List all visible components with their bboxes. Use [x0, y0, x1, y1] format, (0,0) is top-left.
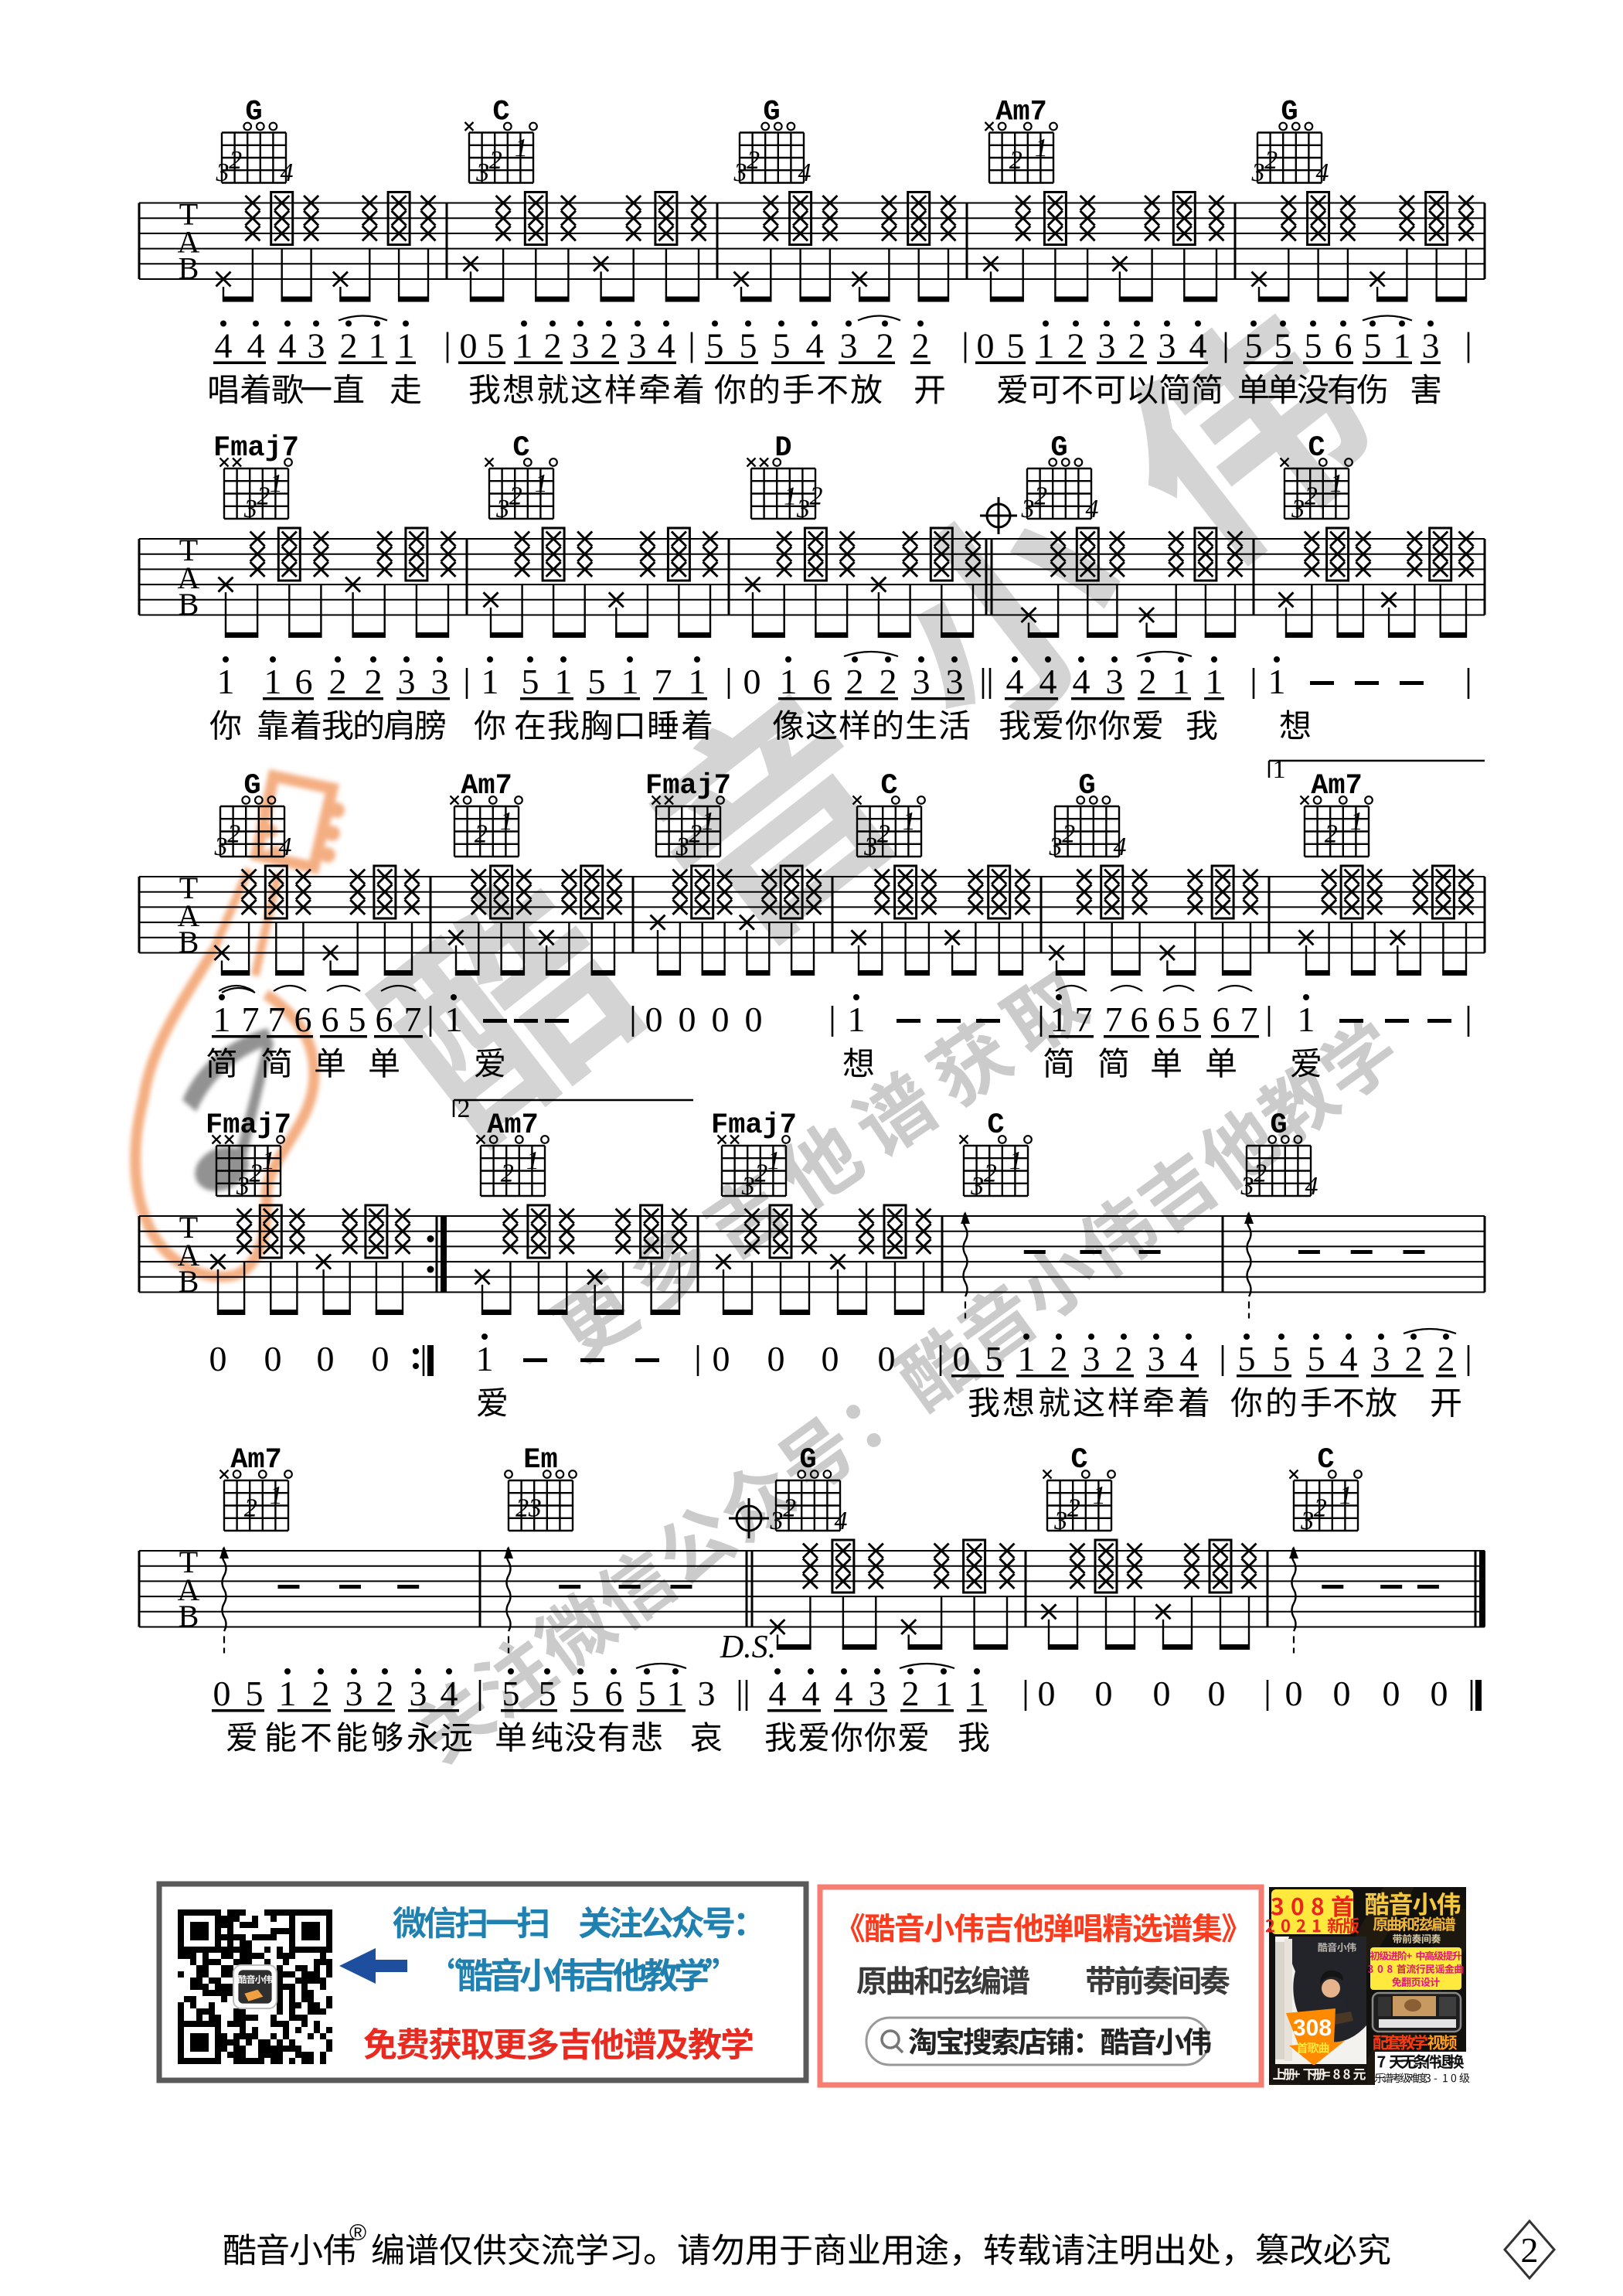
- svg-text:7: 7: [404, 1000, 422, 1039]
- svg-text:3: 3: [1098, 326, 1116, 366]
- svg-text:1: 1: [270, 1481, 283, 1510]
- svg-text:3: 3: [243, 495, 257, 523]
- svg-text:1: 1: [1298, 1000, 1315, 1039]
- svg-text:5: 5: [502, 1674, 520, 1713]
- svg-text:2: 2: [257, 482, 270, 511]
- svg-text:2: 2: [876, 326, 894, 366]
- svg-text:4: 4: [658, 326, 675, 366]
- svg-text:B: B: [179, 1264, 199, 1299]
- svg-text:2: 2: [601, 326, 618, 366]
- svg-text:3: 3: [1049, 833, 1063, 861]
- svg-text:2: 2: [810, 482, 823, 511]
- svg-text:0: 0: [264, 1339, 282, 1378]
- svg-text:3: 3: [675, 833, 689, 861]
- svg-text:1: 1: [369, 326, 386, 366]
- svg-text:2: 2: [509, 482, 522, 511]
- svg-text:4: 4: [1073, 662, 1091, 701]
- svg-text:1: 1: [515, 326, 533, 366]
- svg-text:3: 3: [398, 662, 416, 701]
- svg-text:0: 0: [460, 326, 478, 366]
- svg-text:1: 1: [1037, 326, 1055, 366]
- svg-text:0: 0: [317, 1339, 335, 1378]
- svg-text:C: C: [512, 432, 529, 465]
- svg-text:1: 1: [1393, 326, 1411, 366]
- svg-text:3: 3: [863, 833, 877, 861]
- svg-text:4: 4: [798, 158, 811, 187]
- svg-text:2: 2: [1009, 146, 1022, 175]
- svg-text:2: 2: [227, 820, 240, 849]
- svg-text:1: 1: [1009, 1146, 1022, 1175]
- svg-text:3: 3: [528, 1494, 542, 1523]
- svg-text:3: 3: [495, 495, 509, 523]
- svg-text:0: 0: [977, 326, 995, 366]
- svg-text:4: 4: [1039, 662, 1057, 701]
- svg-text:1: 1: [476, 1339, 494, 1378]
- svg-text:1: 1: [1339, 1481, 1352, 1510]
- svg-text:2: 2: [312, 1674, 330, 1713]
- svg-text:2: 2: [340, 326, 358, 366]
- svg-text:5: 5: [706, 326, 724, 366]
- svg-text:0: 0: [822, 1339, 839, 1378]
- svg-text:5: 5: [1308, 1339, 1325, 1378]
- svg-text:4: 4: [215, 326, 233, 366]
- svg-text:3: 3: [410, 1674, 427, 1713]
- svg-text:1: 1: [217, 662, 235, 701]
- svg-text:2: 2: [880, 662, 897, 701]
- svg-text:1: 1: [689, 662, 706, 701]
- svg-text:4: 4: [1316, 158, 1329, 187]
- svg-text:1: 1: [968, 1674, 986, 1713]
- svg-text:B: B: [179, 1599, 199, 1633]
- svg-text:2: 2: [984, 1160, 997, 1188]
- svg-text:2: 2: [376, 1674, 394, 1713]
- svg-text:2: 2: [1128, 326, 1146, 366]
- svg-text:C: C: [987, 1109, 1004, 1142]
- svg-text:3: 3: [216, 158, 230, 187]
- svg-text:4: 4: [279, 833, 292, 861]
- svg-text:Am7: Am7: [461, 770, 512, 802]
- svg-text:4: 4: [835, 1507, 848, 1535]
- svg-text:5: 5: [349, 1000, 366, 1039]
- svg-text:2: 2: [902, 1674, 920, 1713]
- svg-text:G: G: [1270, 1109, 1287, 1142]
- svg-text:C: C: [880, 770, 897, 802]
- svg-text:3: 3: [345, 1674, 363, 1713]
- svg-text:2: 2: [846, 662, 864, 701]
- svg-text:C: C: [492, 97, 509, 129]
- svg-text:1: 1: [1273, 755, 1286, 784]
- svg-text:1: 1: [481, 662, 499, 701]
- svg-text:3: 3: [236, 1172, 250, 1201]
- svg-text:5: 5: [773, 326, 791, 366]
- svg-text:5: 5: [246, 1674, 264, 1713]
- svg-text:4: 4: [1189, 326, 1207, 366]
- svg-text:5: 5: [1007, 326, 1025, 366]
- svg-text:0: 0: [1208, 1674, 1226, 1713]
- svg-text:5: 5: [1182, 1000, 1200, 1039]
- svg-text:1: 1: [784, 482, 797, 511]
- svg-text:0: 0: [645, 1000, 663, 1039]
- svg-text:5: 5: [487, 326, 505, 366]
- svg-text:7: 7: [655, 662, 672, 701]
- svg-text:1: 1: [1172, 662, 1190, 701]
- svg-text:2: 2: [1405, 1339, 1423, 1378]
- svg-text:6: 6: [1158, 1000, 1176, 1039]
- svg-text:2: 2: [365, 662, 383, 701]
- svg-text:4: 4: [769, 1674, 787, 1713]
- svg-text:4: 4: [1114, 833, 1127, 861]
- svg-text:1: 1: [702, 807, 715, 836]
- svg-text:5: 5: [1364, 326, 1382, 366]
- svg-text:5: 5: [1274, 326, 1292, 366]
- svg-text:2: 2: [1521, 2230, 1539, 2270]
- svg-text:3: 3: [698, 1674, 716, 1713]
- svg-text:0: 0: [1095, 1674, 1113, 1713]
- svg-text:7: 7: [1240, 1000, 1258, 1039]
- svg-text:2: 2: [544, 326, 562, 366]
- svg-text:5: 5: [985, 1339, 1003, 1378]
- svg-text:3: 3: [1159, 326, 1176, 366]
- svg-text:2: 2: [1034, 482, 1047, 511]
- svg-text:Fmaj7: Fmaj7: [645, 770, 731, 802]
- svg-text:3: 3: [1251, 158, 1265, 187]
- svg-text:0: 0: [878, 1339, 896, 1378]
- svg-text:2: 2: [754, 1160, 767, 1188]
- svg-text:1: 1: [279, 1674, 297, 1713]
- svg-text:5: 5: [740, 326, 757, 366]
- svg-text:4: 4: [1305, 1172, 1318, 1201]
- svg-text:0: 0: [1038, 1674, 1056, 1713]
- svg-text:1: 1: [213, 1000, 231, 1039]
- svg-text:5: 5: [539, 1674, 556, 1713]
- svg-text:7: 7: [1075, 1000, 1093, 1039]
- svg-text:3: 3: [629, 326, 647, 366]
- svg-text:0: 0: [953, 1339, 971, 1378]
- svg-text:6: 6: [605, 1674, 623, 1713]
- svg-text:B: B: [179, 925, 199, 959]
- svg-text:6: 6: [1335, 326, 1352, 366]
- svg-text:5: 5: [1238, 1339, 1256, 1378]
- svg-text:1: 1: [270, 469, 283, 498]
- svg-text:G: G: [1078, 770, 1095, 802]
- svg-text:3: 3: [1148, 1339, 1165, 1378]
- svg-text:1: 1: [1093, 1481, 1106, 1510]
- svg-text:3: 3: [733, 158, 747, 187]
- svg-text:1: 1: [621, 662, 639, 701]
- svg-text:3: 3: [869, 1674, 886, 1713]
- svg-text:D: D: [774, 432, 791, 465]
- svg-text:G: G: [1281, 97, 1298, 129]
- svg-text:0: 0: [1153, 1674, 1171, 1713]
- svg-text:5: 5: [1245, 326, 1263, 366]
- svg-text:0: 0: [209, 1339, 227, 1378]
- svg-text:G: G: [799, 1444, 816, 1477]
- svg-text:7: 7: [1105, 1000, 1123, 1039]
- svg-text:2: 2: [1115, 1339, 1133, 1378]
- svg-text:308: 308: [1293, 2015, 1332, 2041]
- svg-text:C: C: [1070, 1444, 1087, 1477]
- svg-text:6: 6: [295, 662, 313, 701]
- svg-text:2: 2: [475, 820, 488, 849]
- svg-text:4: 4: [1180, 1339, 1198, 1378]
- svg-text:1: 1: [848, 1000, 866, 1039]
- svg-text:3: 3: [741, 1172, 755, 1201]
- svg-text:6: 6: [376, 1000, 393, 1039]
- svg-text:1: 1: [515, 134, 528, 162]
- svg-text:5: 5: [522, 662, 539, 701]
- svg-text:0: 0: [745, 1000, 763, 1039]
- svg-text:4: 4: [281, 158, 294, 187]
- svg-text:4: 4: [441, 1674, 458, 1713]
- svg-text:1: 1: [397, 326, 415, 366]
- svg-text:Fmaj7: Fmaj7: [213, 432, 299, 465]
- svg-text:2: 2: [458, 1095, 471, 1123]
- svg-text:1: 1: [1018, 1339, 1036, 1378]
- svg-text:3: 3: [1291, 495, 1305, 523]
- svg-text:4: 4: [1086, 495, 1099, 523]
- svg-text:G: G: [243, 770, 260, 802]
- svg-text:1: 1: [526, 1146, 539, 1175]
- svg-text:5: 5: [1273, 1339, 1291, 1378]
- svg-text:G: G: [1050, 432, 1067, 465]
- svg-text:0: 0: [767, 1339, 785, 1378]
- svg-text:1: 1: [780, 662, 798, 701]
- svg-text:4: 4: [1006, 662, 1024, 701]
- svg-text:2: 2: [1314, 1494, 1327, 1523]
- svg-text:3: 3: [1240, 1172, 1254, 1201]
- svg-text:3: 3: [913, 662, 931, 701]
- svg-text:2: 2: [501, 1160, 514, 1188]
- svg-text:4: 4: [1340, 1339, 1358, 1378]
- svg-text:3: 3: [308, 326, 325, 366]
- svg-text:1: 1: [1350, 807, 1363, 836]
- svg-text:2: 2: [1050, 1339, 1068, 1378]
- svg-text:1: 1: [1330, 469, 1343, 498]
- svg-text:3: 3: [970, 1172, 984, 1201]
- svg-text:4: 4: [835, 1674, 853, 1713]
- svg-text:1: 1: [767, 1146, 781, 1175]
- svg-text:1: 1: [667, 1674, 685, 1713]
- svg-text:2: 2: [689, 820, 702, 849]
- svg-text:3: 3: [1083, 1339, 1101, 1378]
- svg-text:2: 2: [489, 146, 502, 175]
- svg-text:1: 1: [935, 1674, 953, 1713]
- svg-text:®: ®: [349, 2220, 366, 2246]
- svg-text:7: 7: [268, 1000, 286, 1039]
- svg-text:Fmaj7: Fmaj7: [711, 1109, 797, 1142]
- svg-text:Am7: Am7: [1311, 770, 1363, 802]
- svg-text:3: 3: [1106, 662, 1124, 701]
- svg-text:2: 2: [1062, 820, 1075, 849]
- svg-text:Am7: Am7: [995, 97, 1047, 129]
- svg-text:2: 2: [1254, 1160, 1267, 1188]
- svg-text:6: 6: [1213, 1000, 1230, 1039]
- svg-text:0: 0: [1431, 1674, 1448, 1713]
- svg-text:1: 1: [1050, 1000, 1068, 1039]
- svg-text:0: 0: [213, 1674, 231, 1713]
- svg-text:0: 0: [1383, 1674, 1400, 1713]
- svg-text:2: 2: [877, 820, 890, 849]
- svg-text:Am7: Am7: [487, 1109, 539, 1142]
- svg-text:3: 3: [1053, 1507, 1067, 1535]
- svg-text:1: 1: [1035, 134, 1048, 162]
- svg-text:C: C: [1317, 1444, 1334, 1477]
- svg-text:4: 4: [802, 1674, 820, 1713]
- svg-text:1: 1: [903, 807, 916, 836]
- svg-text:3: 3: [572, 326, 590, 366]
- svg-text:3: 3: [475, 158, 489, 187]
- svg-text:5: 5: [572, 1674, 590, 1713]
- svg-text:0: 0: [1285, 1674, 1303, 1713]
- svg-text:3: 3: [1422, 326, 1440, 366]
- svg-text:G: G: [245, 97, 262, 129]
- svg-text:3: 3: [946, 662, 964, 701]
- svg-text:3: 3: [1021, 495, 1035, 523]
- svg-text:2: 2: [1325, 820, 1338, 849]
- svg-text:7: 7: [242, 1000, 260, 1039]
- svg-text:B: B: [179, 251, 199, 286]
- svg-text:2: 2: [1067, 326, 1085, 366]
- svg-text:0: 0: [743, 662, 761, 701]
- svg-text:6: 6: [294, 1000, 312, 1039]
- svg-text:0: 0: [1333, 1674, 1351, 1713]
- svg-text:5: 5: [588, 662, 606, 701]
- svg-text:2: 2: [1139, 662, 1157, 701]
- svg-text:3: 3: [214, 833, 228, 861]
- svg-text:3: 3: [770, 1507, 784, 1535]
- svg-text:2: 2: [1264, 146, 1278, 175]
- svg-text:2: 2: [229, 146, 242, 175]
- svg-text:5: 5: [1305, 326, 1322, 366]
- svg-text:D.S.: D.S.: [720, 1630, 776, 1665]
- svg-text:1: 1: [535, 469, 548, 498]
- svg-text:6: 6: [813, 662, 831, 701]
- svg-text:2: 2: [515, 1494, 529, 1523]
- svg-text:1: 1: [555, 662, 573, 701]
- svg-text:6: 6: [322, 1000, 339, 1039]
- svg-text:2: 2: [1067, 1494, 1080, 1523]
- svg-text:0: 0: [712, 1000, 730, 1039]
- svg-text:2: 2: [747, 146, 760, 175]
- svg-text:2: 2: [249, 1160, 262, 1188]
- svg-text:3: 3: [796, 495, 810, 523]
- svg-text:2: 2: [1305, 482, 1318, 511]
- svg-text:G: G: [763, 97, 780, 129]
- svg-text:3: 3: [1300, 1507, 1314, 1535]
- svg-text:Am7: Am7: [230, 1444, 282, 1477]
- svg-text:3: 3: [431, 662, 449, 701]
- svg-text:4: 4: [279, 326, 297, 366]
- svg-text:1: 1: [1206, 662, 1223, 701]
- svg-text:2: 2: [329, 662, 347, 701]
- svg-text:0: 0: [713, 1339, 730, 1378]
- svg-text:1: 1: [500, 807, 513, 836]
- svg-text:2: 2: [783, 1494, 796, 1523]
- svg-text:4: 4: [247, 326, 265, 366]
- svg-text:1: 1: [262, 1146, 275, 1175]
- svg-text:Em: Em: [523, 1444, 557, 1477]
- svg-text:1: 1: [264, 662, 282, 701]
- svg-text:Fmaj7: Fmaj7: [206, 1109, 291, 1142]
- svg-text:B: B: [179, 587, 199, 622]
- svg-text:4: 4: [806, 326, 824, 366]
- svg-text:1: 1: [445, 1000, 463, 1039]
- svg-text:2: 2: [244, 1494, 257, 1523]
- svg-text:0: 0: [372, 1339, 390, 1378]
- svg-text:5: 5: [638, 1674, 656, 1713]
- svg-text:2: 2: [1438, 1339, 1455, 1378]
- svg-text:6: 6: [1131, 1000, 1148, 1039]
- svg-text:1: 1: [1268, 662, 1286, 701]
- svg-text:2: 2: [912, 326, 930, 366]
- svg-text:3: 3: [1373, 1339, 1390, 1378]
- svg-text:3: 3: [840, 326, 858, 366]
- svg-text:C: C: [1308, 432, 1325, 465]
- svg-text:0: 0: [679, 1000, 696, 1039]
